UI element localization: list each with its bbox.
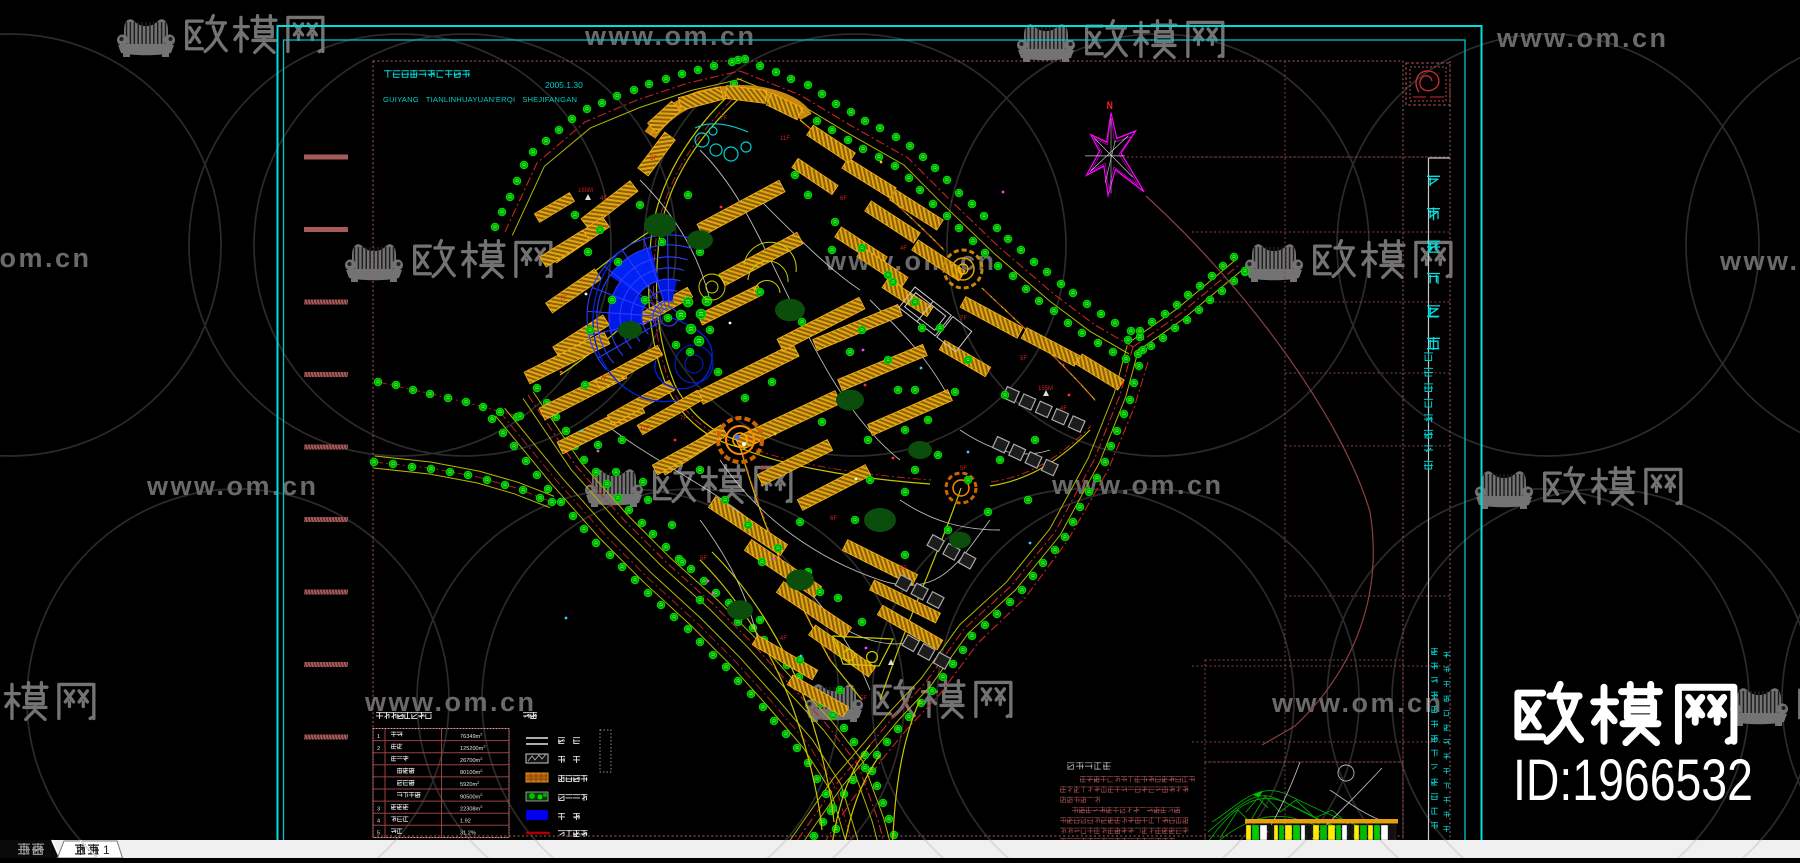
svg-text:125200m2: 125200m2 bbox=[460, 744, 486, 752]
svg-text:4F: 4F bbox=[1060, 406, 1067, 412]
svg-text:4: 4 bbox=[377, 819, 380, 825]
svg-text:76349m2: 76349m2 bbox=[460, 732, 483, 740]
svg-text:GUIYANG TIANLINHUAYUAN'ERQI: GUIYANG TIANLINHUAYUAN'ERQI SHEJIFANGAN bbox=[383, 95, 577, 104]
svg-text:7F: 7F bbox=[680, 416, 687, 422]
svg-text:5F: 5F bbox=[860, 696, 867, 702]
svg-text:www.om.cn: www.om.cn bbox=[1271, 688, 1444, 718]
svg-text:5920m2: 5920m2 bbox=[460, 780, 480, 788]
svg-text:2: 2 bbox=[377, 746, 380, 752]
svg-text:11F: 11F bbox=[780, 136, 790, 142]
svg-text:www.om.cn: www.om.cn bbox=[1719, 246, 1800, 276]
svg-text:N: N bbox=[1107, 100, 1113, 112]
svg-text:22308m2: 22308m2 bbox=[460, 804, 483, 812]
svg-text:www.om.cn: www.om.cn bbox=[1496, 23, 1669, 53]
svg-text:www.om.cn: www.om.cn bbox=[1051, 470, 1224, 500]
svg-text:5F: 5F bbox=[1020, 356, 1027, 362]
svg-text:7F: 7F bbox=[960, 316, 967, 322]
svg-text:2005.1.30: 2005.1.30 bbox=[545, 80, 583, 90]
svg-text:31.2%: 31.2% bbox=[460, 831, 476, 837]
svg-text:1: 1 bbox=[103, 843, 110, 857]
svg-text:1: 1 bbox=[377, 734, 380, 740]
svg-text:4F: 4F bbox=[600, 196, 607, 202]
svg-text:5F: 5F bbox=[960, 466, 967, 472]
svg-text:5: 5 bbox=[377, 831, 380, 837]
svg-text:1.92: 1.92 bbox=[460, 819, 471, 825]
svg-text:80100m2: 80100m2 bbox=[460, 768, 483, 776]
svg-text:ID:1966532: ID:1966532 bbox=[1513, 748, 1753, 813]
svg-text:5F: 5F bbox=[700, 556, 707, 562]
svg-text:11F: 11F bbox=[640, 426, 650, 432]
svg-text:90500m2: 90500m2 bbox=[460, 792, 483, 800]
svg-text:www.om.cn: www.om.cn bbox=[146, 471, 319, 501]
svg-text:6F: 6F bbox=[760, 466, 767, 472]
svg-text:6F: 6F bbox=[830, 516, 837, 522]
svg-text:5F: 5F bbox=[900, 566, 907, 572]
svg-text:www.om.cn: www.om.cn bbox=[0, 243, 92, 273]
svg-text:165M: 165M bbox=[578, 188, 593, 194]
svg-text:4F: 4F bbox=[780, 636, 787, 642]
svg-text:7F: 7F bbox=[720, 116, 727, 122]
svg-text:6F: 6F bbox=[840, 196, 847, 202]
svg-text:5F: 5F bbox=[650, 156, 657, 162]
svg-text:26700m2: 26700m2 bbox=[460, 756, 483, 764]
svg-text:3: 3 bbox=[377, 806, 380, 812]
svg-text:4F: 4F bbox=[900, 246, 907, 252]
svg-text:7F: 7F bbox=[560, 296, 567, 302]
svg-text:7F: 7F bbox=[600, 376, 607, 382]
